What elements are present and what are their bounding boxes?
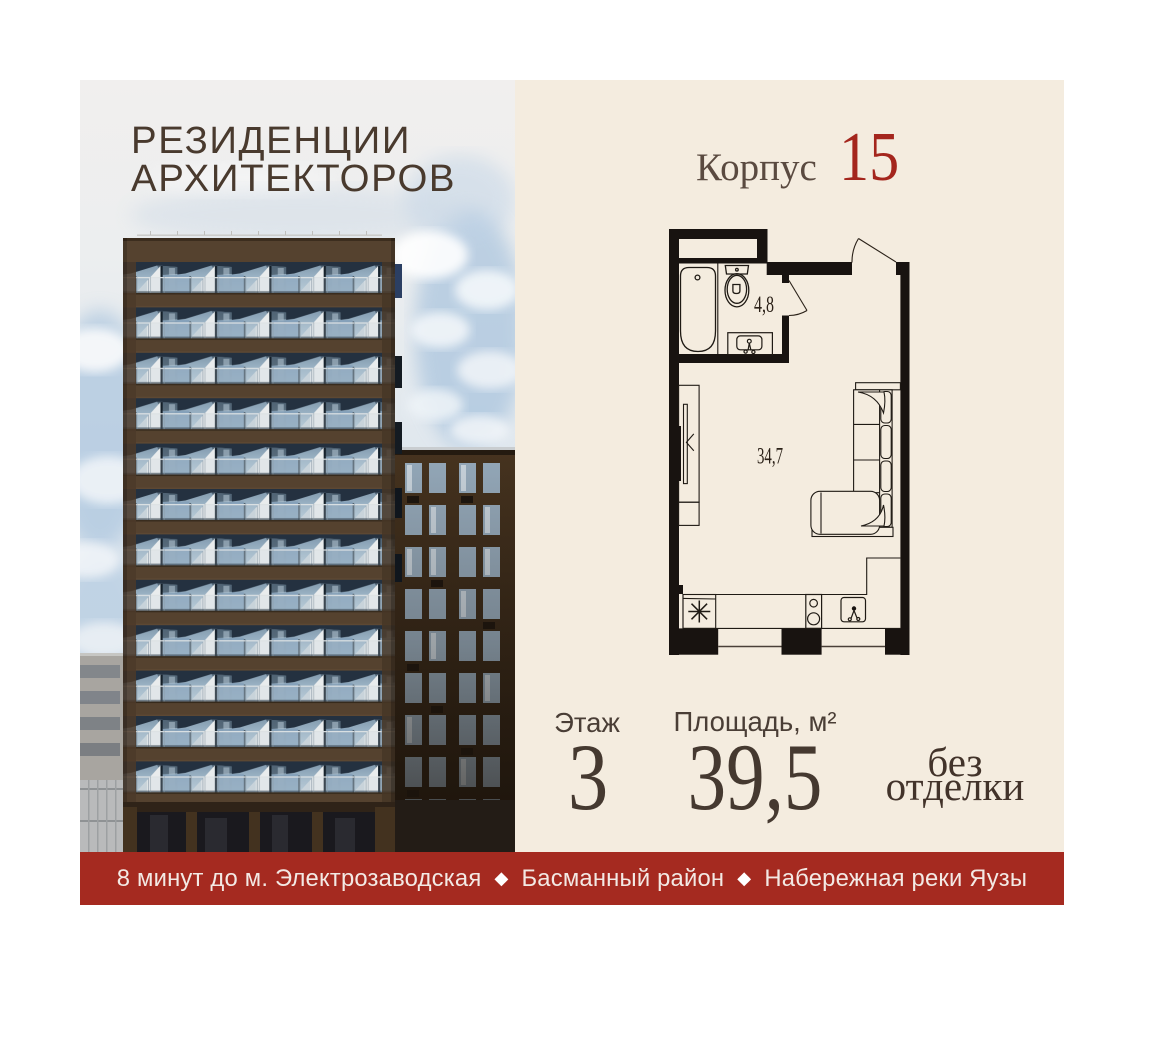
svg-text:34,7: 34,7	[757, 444, 783, 469]
svg-text:4,8: 4,8	[754, 292, 774, 317]
